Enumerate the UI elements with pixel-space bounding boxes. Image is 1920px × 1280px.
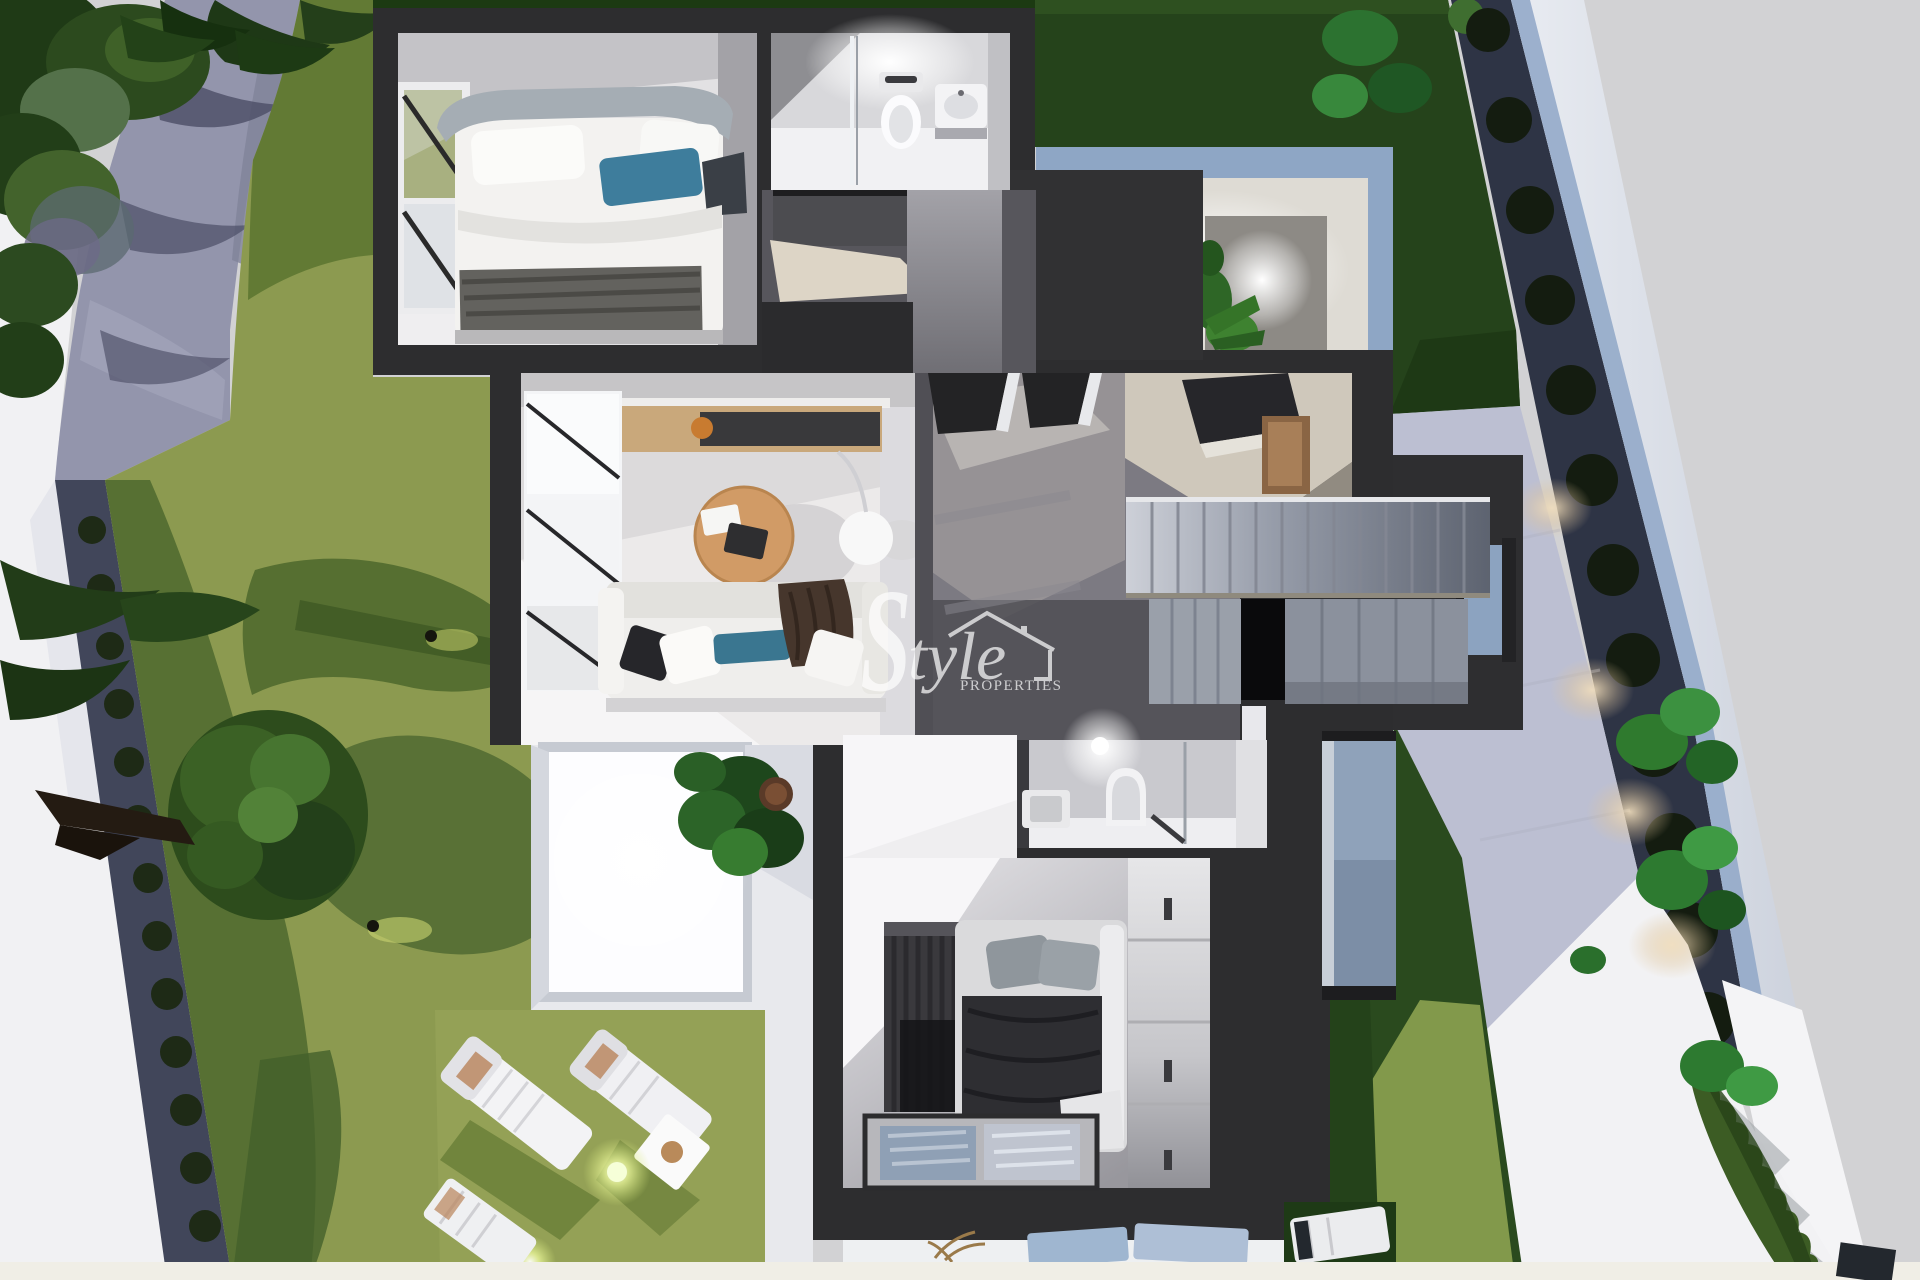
svg-text:PROPERTIES: PROPERTIES xyxy=(960,678,1062,694)
svg-text:S: S xyxy=(860,558,911,723)
